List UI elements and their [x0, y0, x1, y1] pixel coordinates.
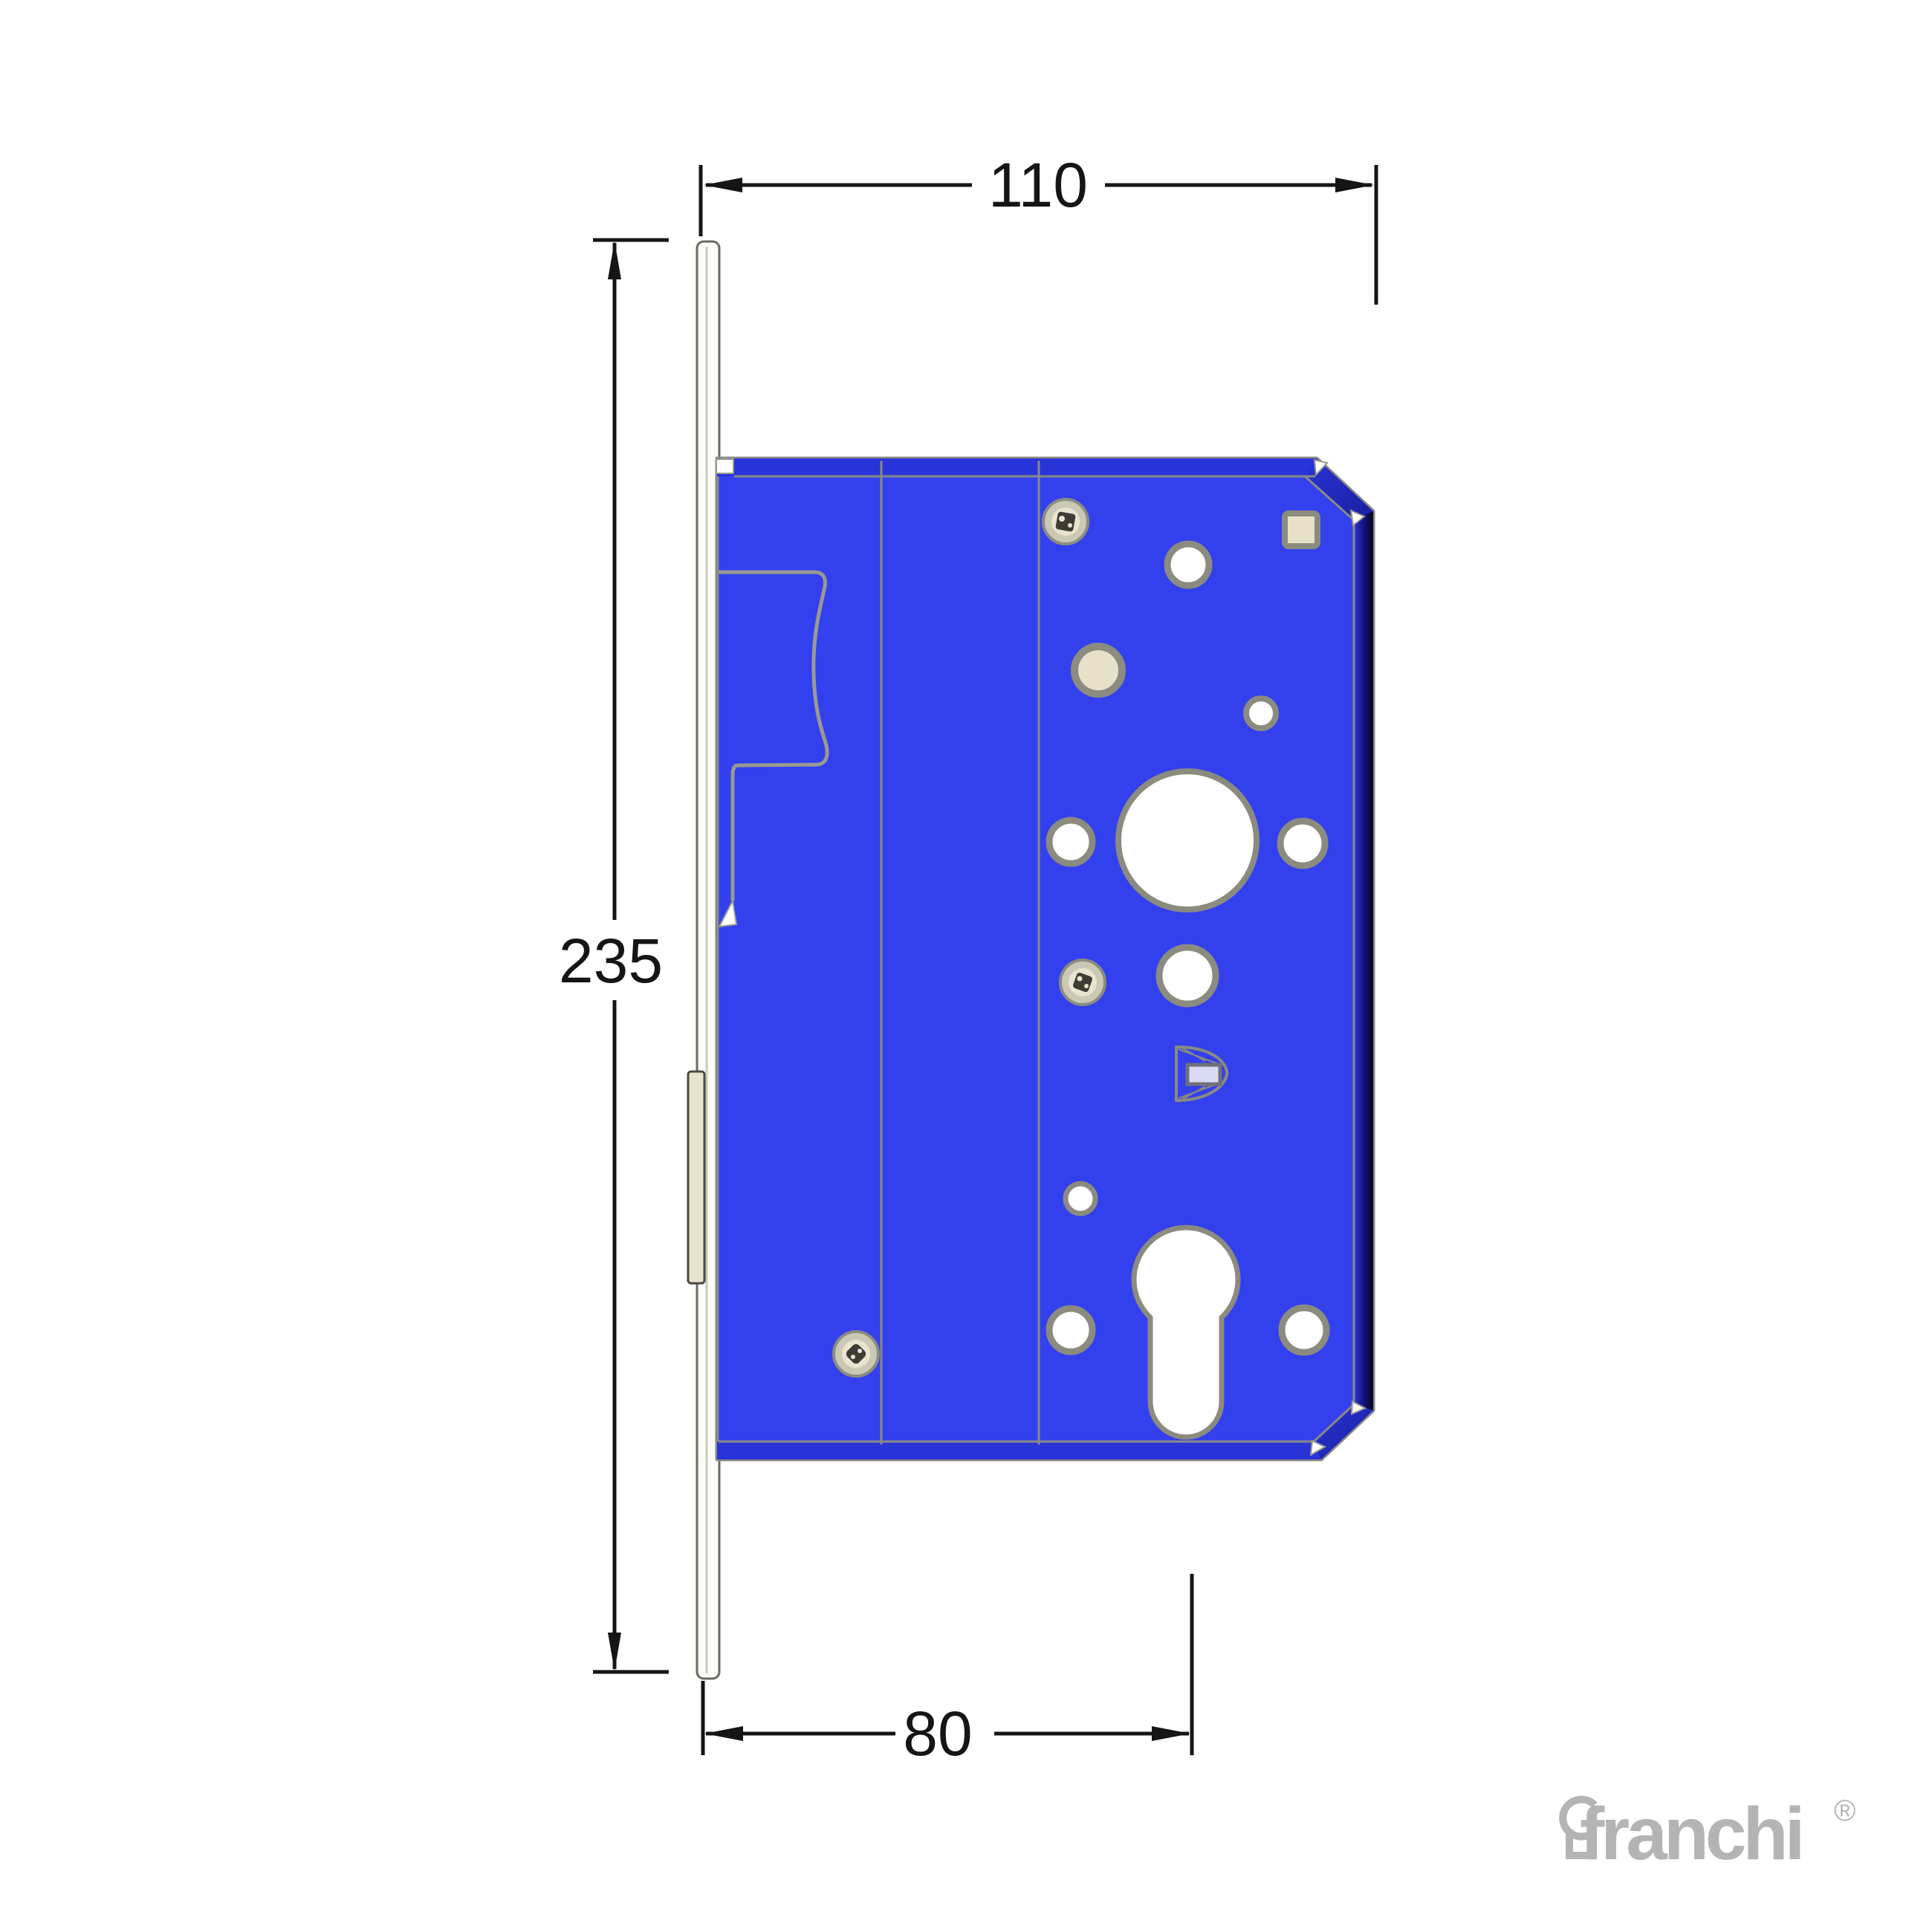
dim-label-backset: 80	[903, 1699, 972, 1769]
case-plate	[717, 458, 1373, 1459]
lock-diagram: 110 235 80 franchi ®	[0, 0, 1932, 1932]
arrowhead-up	[608, 241, 621, 279]
arrowhead-left	[704, 1726, 743, 1741]
case-bottom-flange	[717, 1442, 1321, 1459]
hole-small-right	[1246, 698, 1276, 728]
deadbolt	[688, 1072, 704, 1283]
hole-cylinder-right	[1282, 1308, 1326, 1352]
dimension-overall-width: 110	[701, 150, 1376, 305]
franchi-logo: franchi ®	[1563, 1792, 1855, 1876]
registered-mark: ®	[1834, 1795, 1855, 1827]
dim-label-width: 110	[988, 150, 1088, 220]
hole-mid-center	[1159, 947, 1216, 1004]
hole-spindle-right	[1280, 821, 1325, 866]
hole-small-left	[1066, 1184, 1095, 1213]
hole-top-center	[1167, 544, 1209, 586]
hole-cylinder-left	[1049, 1309, 1092, 1352]
lock-case	[716, 458, 1373, 1459]
screw-top	[1043, 499, 1088, 544]
screw-bottom-left	[834, 1332, 878, 1376]
case-top-flange	[717, 458, 1317, 476]
arrowhead-right	[1152, 1726, 1190, 1741]
hole-beige-plug	[1074, 646, 1122, 694]
arrowhead-left	[704, 178, 742, 192]
case-top-left-notch	[716, 459, 733, 473]
case-right-flange	[1354, 511, 1373, 1410]
euro-profile-cylinder-hole	[1134, 1228, 1238, 1437]
main-spindle-hole	[1118, 771, 1257, 910]
drawing-canvas: 110 235 80 franchi ®	[0, 0, 1932, 1932]
square-hole	[1285, 513, 1317, 546]
arrowhead-right	[1335, 178, 1374, 192]
screw-middle	[1060, 960, 1105, 1005]
clip-window	[1187, 1065, 1220, 1084]
arrowhead-down	[608, 1633, 621, 1671]
dimension-faceplate-height: 235	[559, 240, 669, 1672]
dimension-backset: 80	[703, 1574, 1192, 1769]
hole-spindle-left	[1049, 820, 1092, 863]
dim-label-height: 235	[559, 926, 663, 996]
brand-name: franchi	[1580, 1792, 1801, 1876]
